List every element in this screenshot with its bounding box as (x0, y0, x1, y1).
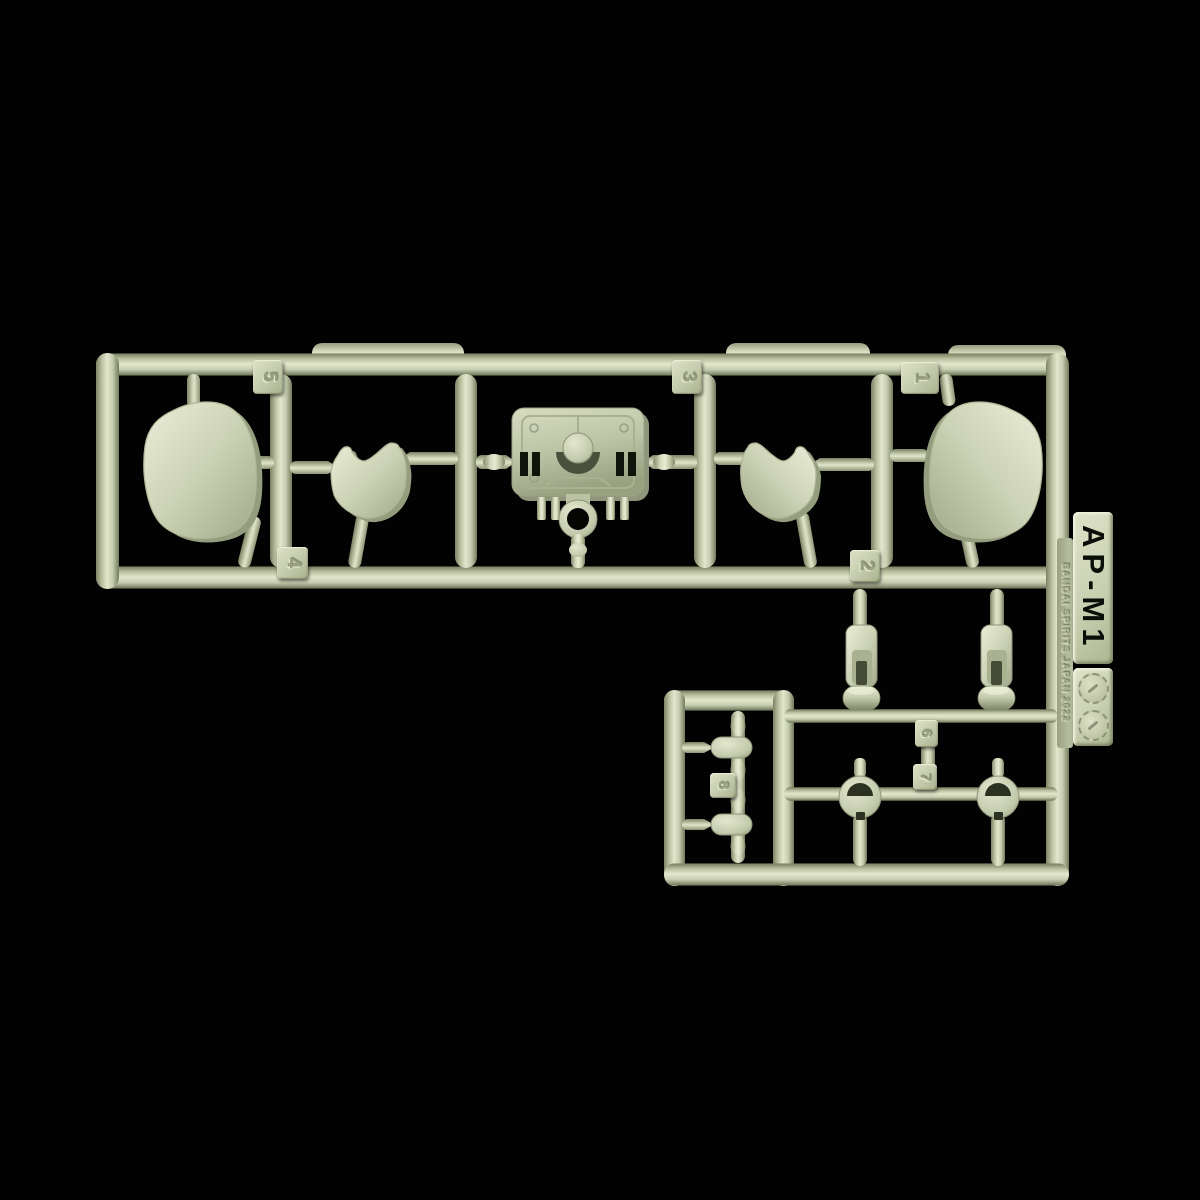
part-number-label: 4 (281, 558, 303, 569)
part-number-label: 1 (909, 373, 931, 384)
part-number-tab-6: 6 (915, 720, 938, 747)
material-mark-icon (1078, 710, 1109, 741)
gate-stub (682, 819, 714, 830)
part-number-tab-2: 2 (850, 550, 880, 582)
part-3-backpack-center (483, 408, 675, 568)
gate-stub (682, 742, 714, 753)
gate-stub (234, 456, 274, 469)
hinge-stem-left (853, 589, 867, 631)
maker-emboss-text: BANDAI SPIRITS JAPAN 2022 (1060, 563, 1071, 722)
sprue-runner-d (871, 374, 893, 568)
sprue-runner-a (270, 374, 292, 568)
sprue-runner-b (455, 374, 477, 568)
material-marks-plate (1073, 668, 1113, 746)
sprue-photo-scene: 5 4 3 1 2 6 7 8 BANDAI SPIRITS JAPAN 202… (0, 0, 1200, 1200)
gate-stub (795, 511, 818, 568)
gate-stub (714, 452, 764, 465)
gate-stub (643, 455, 697, 469)
gate-stub (187, 374, 200, 408)
part-5-shield-left (144, 402, 263, 543)
part-number-tab-8: 8 (710, 773, 736, 798)
gate-stub (347, 513, 369, 568)
maker-emboss-strip: BANDAI SPIRITS JAPAN 2022 (1057, 538, 1073, 748)
part-number-tab-1: 1 (901, 362, 939, 394)
part-1-shield-right (924, 402, 1043, 543)
part-number-label: 7 (917, 773, 934, 781)
part-number-label: 2 (854, 561, 876, 572)
part-number-tab-7: 7 (913, 764, 937, 790)
hinge-stem-right (990, 589, 1004, 631)
gate-stub (957, 517, 980, 569)
part-number-tab-3: 3 (672, 360, 702, 394)
gate-stub (810, 458, 874, 471)
part-number-label: 3 (676, 372, 698, 383)
sprue-parts-layer (0, 0, 1200, 1200)
sprue-rail-middle (96, 566, 1068, 589)
gate-stub (939, 373, 956, 406)
round-part-stub-left (853, 814, 867, 866)
part-6-hinge-right (978, 625, 1015, 710)
sprue-rail-left-edge (96, 353, 119, 589)
gate-stub (237, 515, 262, 569)
part-number-label: 5 (257, 372, 279, 383)
sprue-rail-bottom (664, 863, 1069, 886)
part-number-label: 8 (715, 781, 732, 789)
gate-stub (476, 455, 516, 469)
material-mark-icon (1078, 673, 1109, 704)
round-part-stub-right (991, 814, 1005, 866)
sprue-runner-c (694, 374, 716, 568)
part-number-tab-5: 5 (253, 360, 283, 394)
part-4-collar-left (331, 443, 411, 522)
part-number-tab-4: 4 (277, 547, 308, 579)
subframe-rail-left (664, 690, 685, 886)
part-6-hinge-left (843, 625, 880, 710)
gate-stub (290, 461, 338, 474)
runner-code-tag: AP-M1 (1073, 512, 1113, 664)
gate-stub (400, 452, 458, 465)
runner-code-text: AP-M1 (1075, 525, 1111, 651)
gate-stub (890, 449, 934, 462)
part-number-label: 6 (918, 729, 935, 737)
